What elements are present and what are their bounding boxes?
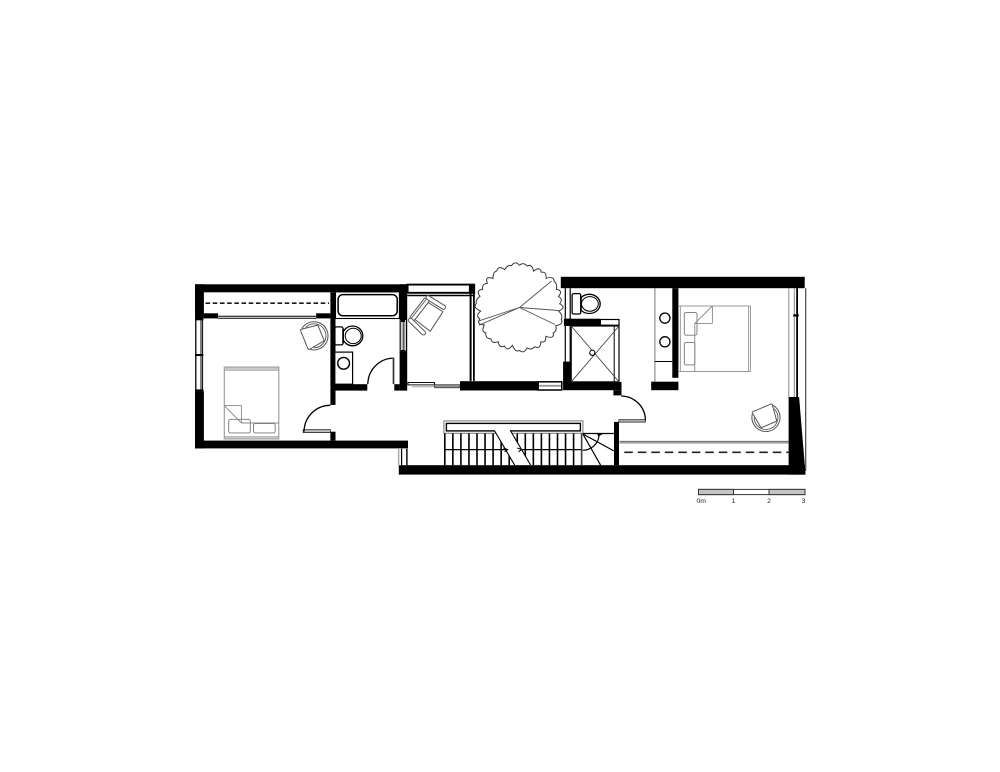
svg-text:3: 3 (802, 498, 806, 505)
svg-text:0m: 0m (697, 498, 707, 505)
svg-text:2: 2 (767, 498, 771, 505)
svg-text:1: 1 (732, 498, 736, 505)
